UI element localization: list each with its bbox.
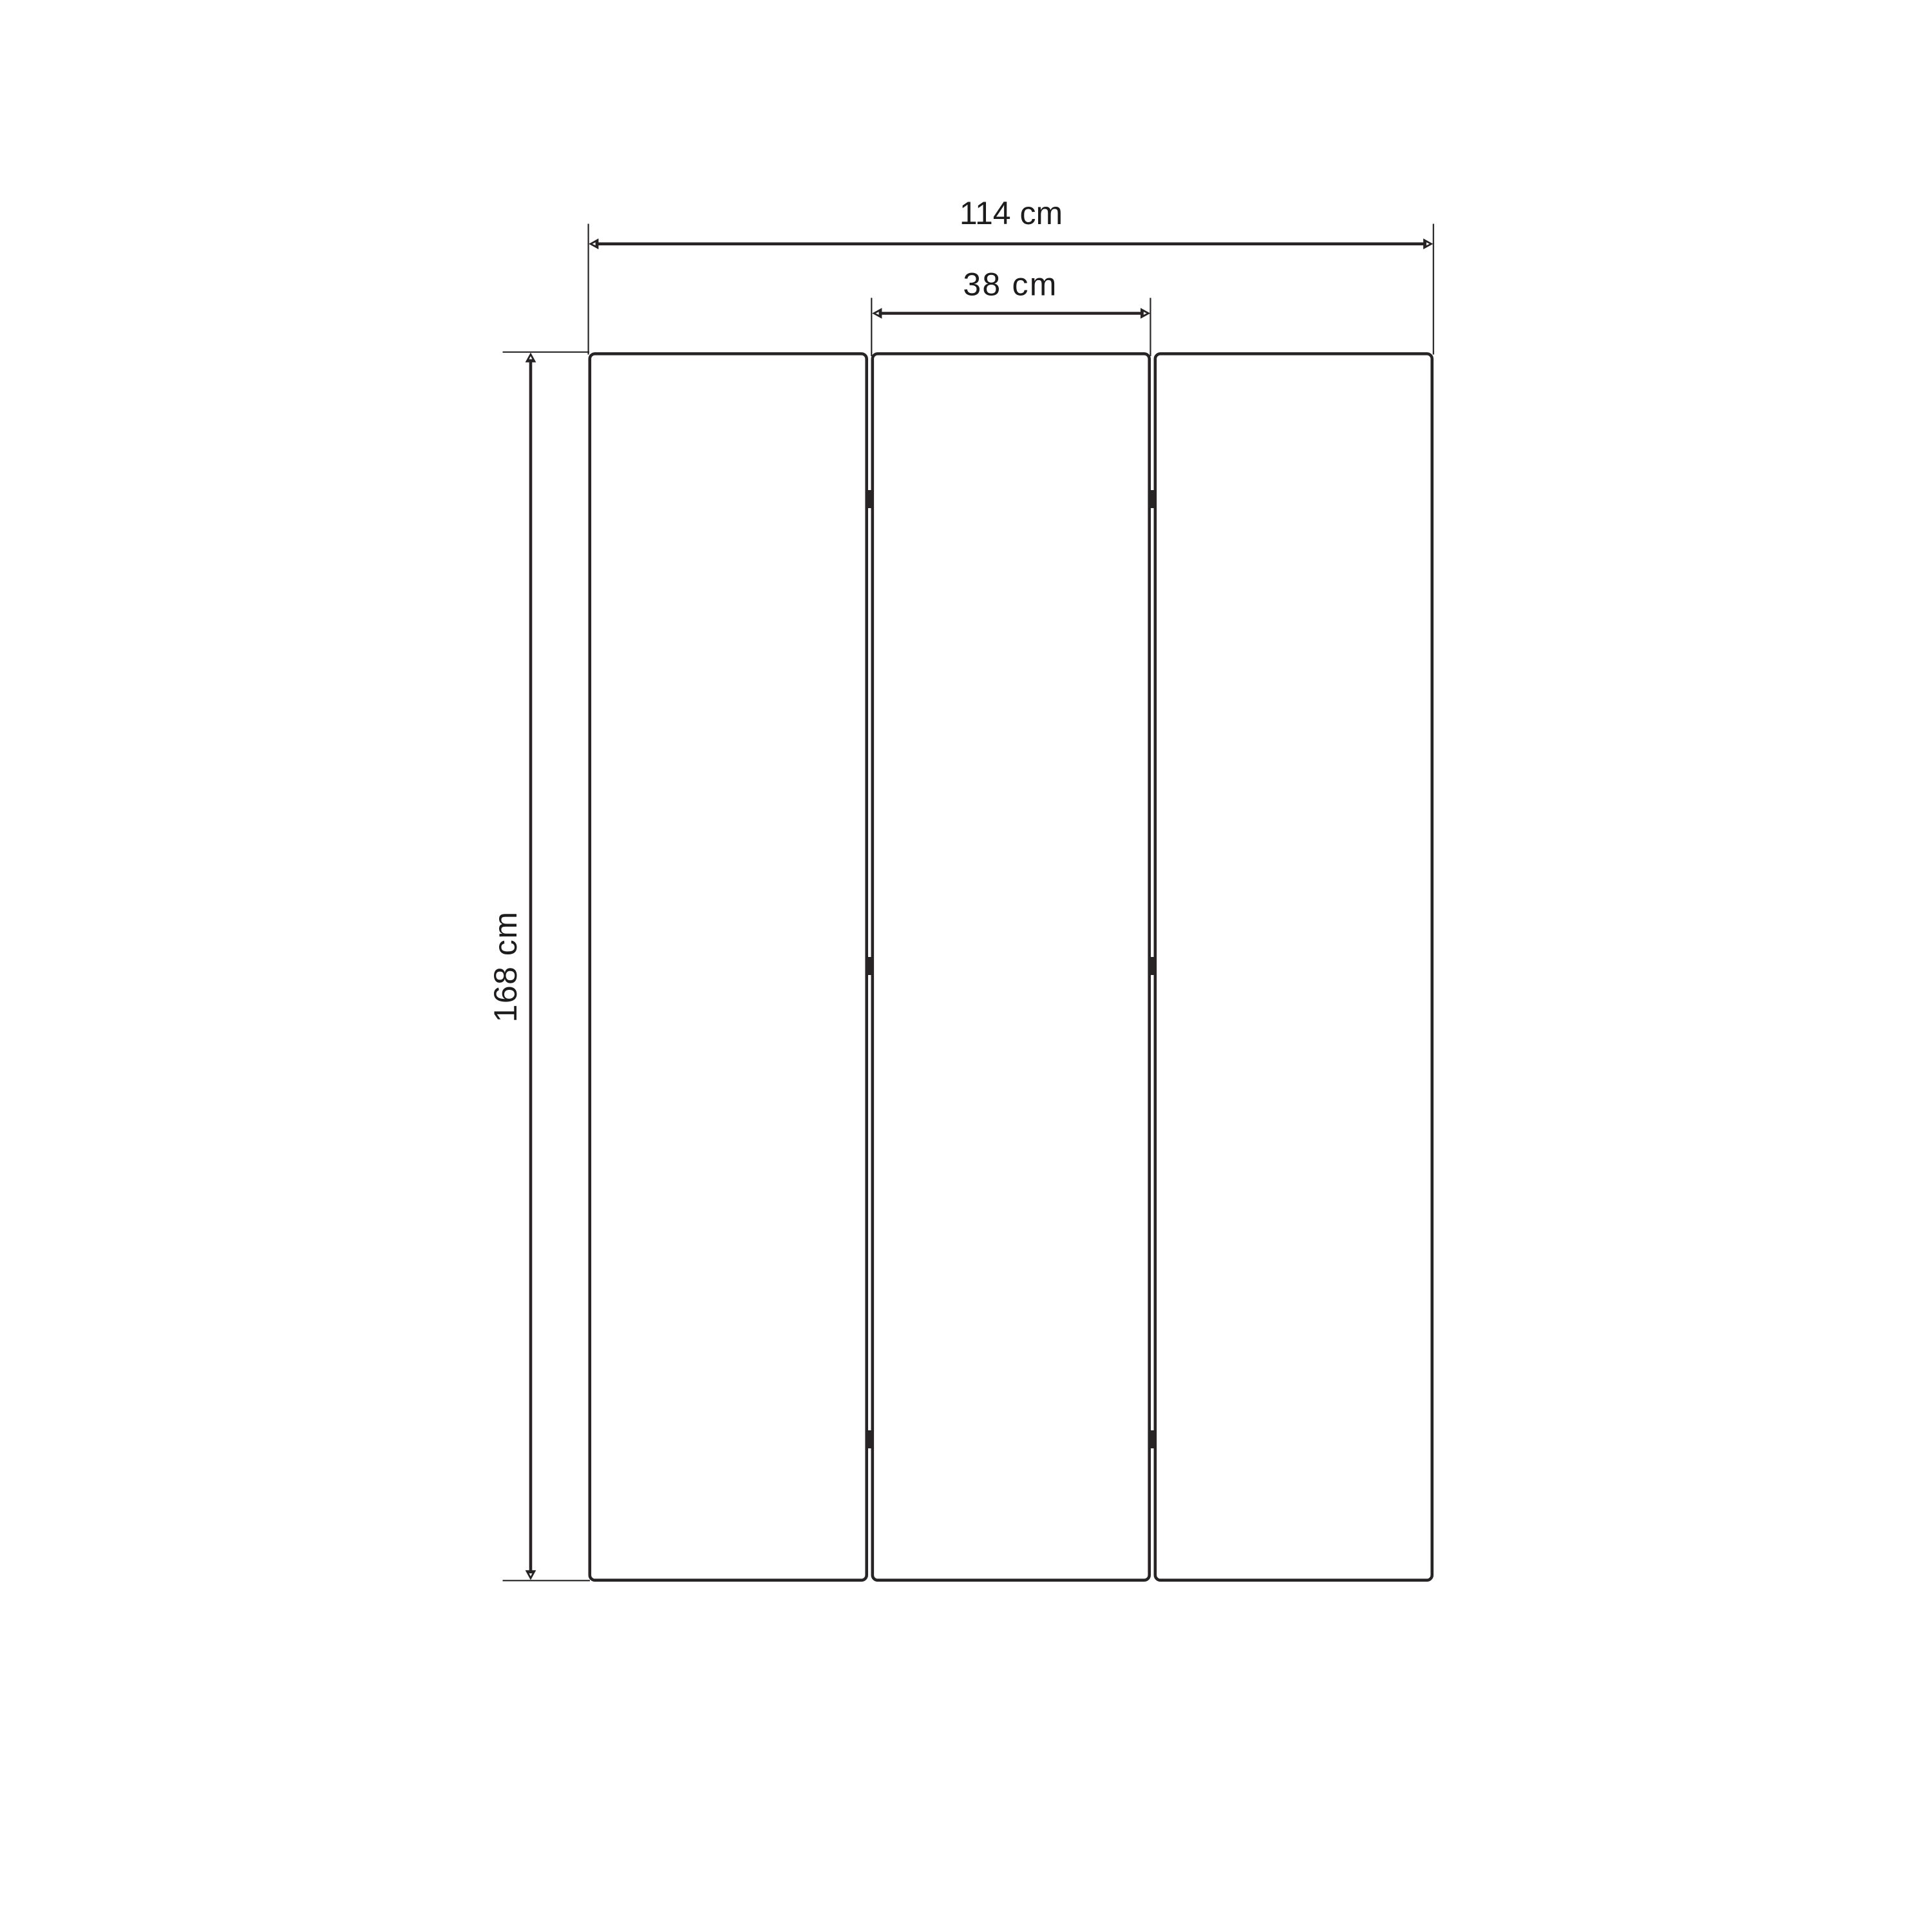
svg-text:168 cm: 168 cm — [488, 911, 524, 1023]
svg-text:38 cm: 38 cm — [963, 267, 1057, 303]
svg-text:114 cm: 114 cm — [960, 195, 1063, 231]
